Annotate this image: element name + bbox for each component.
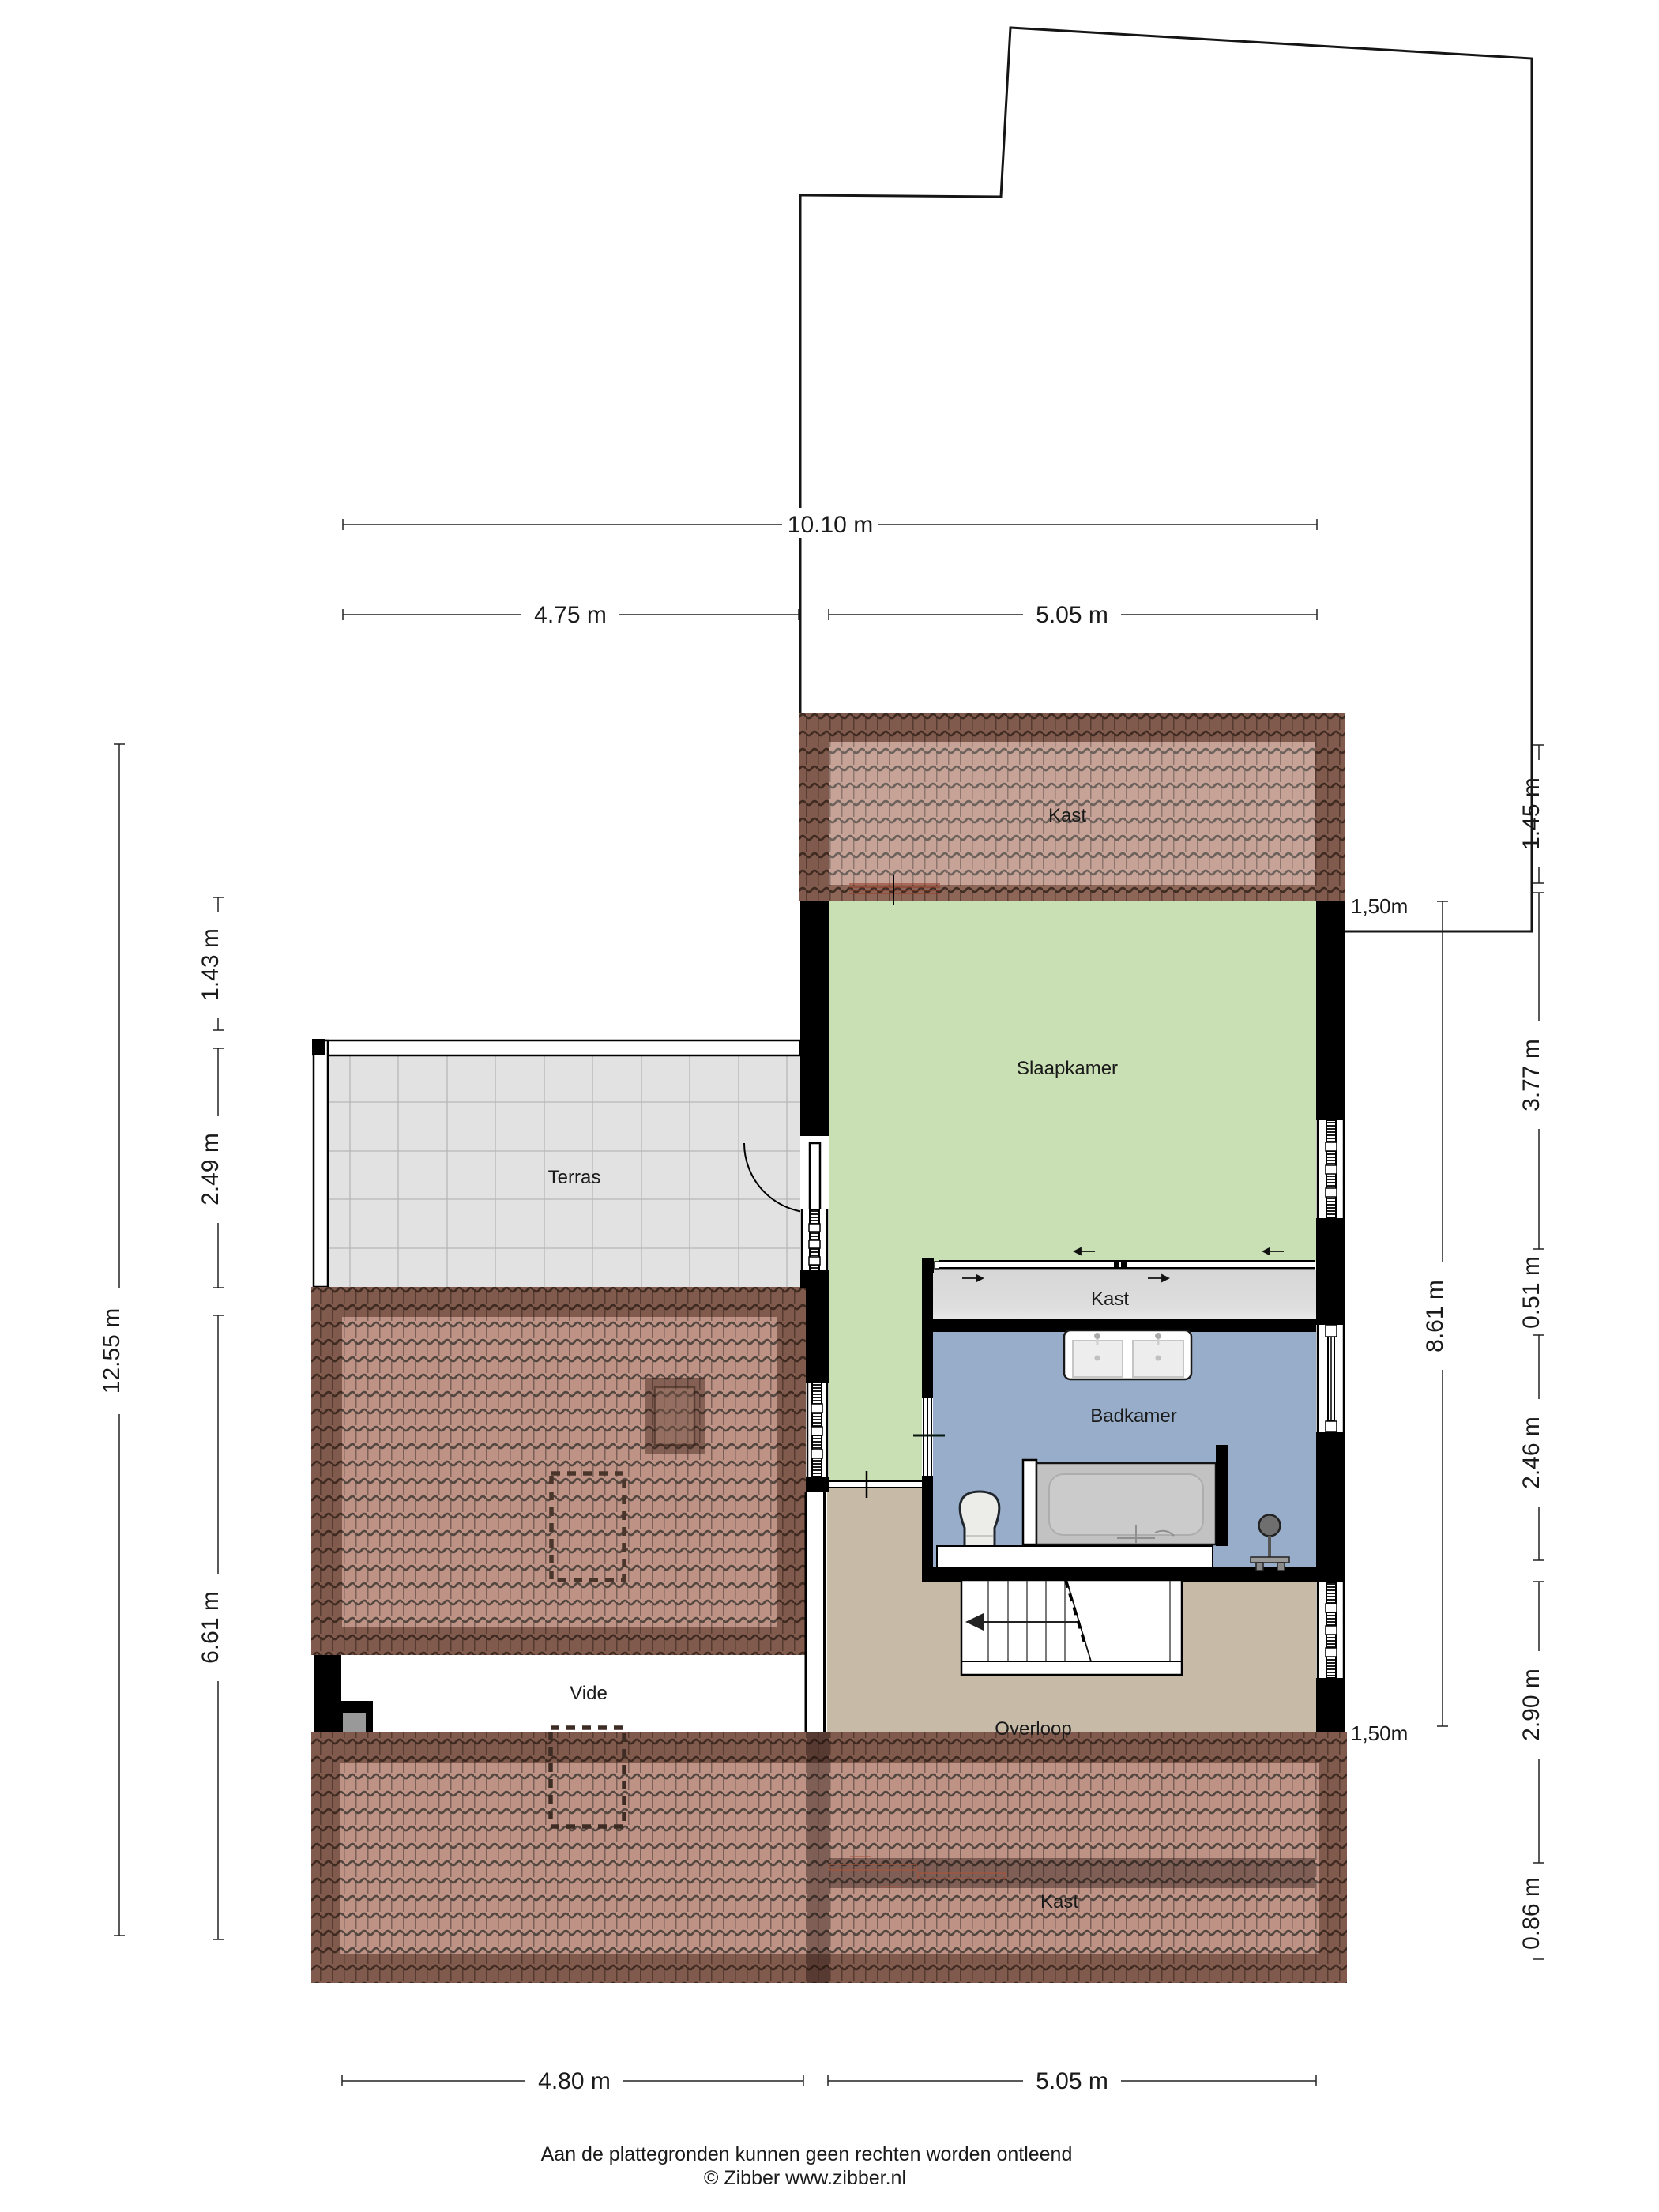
svg-text:2.90 m: 2.90 m	[1518, 1668, 1544, 1741]
svg-text:Badkamer: Badkamer	[1090, 1405, 1176, 1427]
svg-text:12.55 m: 12.55 m	[99, 1308, 125, 1394]
svg-text:© Zibber www.zibber.nl: © Zibber www.zibber.nl	[704, 2167, 906, 2189]
svg-text:5.05 m: 5.05 m	[1036, 602, 1108, 628]
svg-text:Vide: Vide	[570, 1683, 608, 1704]
svg-text:Kast: Kast	[1040, 1891, 1078, 1913]
svg-text:2.49 m: 2.49 m	[197, 1133, 224, 1206]
svg-text:1.43 m: 1.43 m	[197, 928, 224, 1001]
svg-text:1,50m: 1,50m	[1351, 1721, 1408, 1745]
svg-text:5.05 m: 5.05 m	[1036, 2068, 1108, 2094]
svg-text:4.80 m: 4.80 m	[538, 2068, 611, 2094]
svg-text:1,50m: 1,50m	[1351, 894, 1408, 918]
svg-text:Overloop: Overloop	[995, 1718, 1071, 1740]
svg-text:0.51 m: 0.51 m	[1518, 1256, 1544, 1329]
svg-text:1.45 m: 1.45 m	[1518, 777, 1544, 850]
svg-text:Aan de plattegronden kunnen ge: Aan de plattegronden kunnen geen rechten…	[541, 2143, 1073, 2165]
svg-text:6.61 m: 6.61 m	[197, 1591, 224, 1664]
svg-text:0.86 m: 0.86 m	[1518, 1877, 1544, 1950]
svg-text:Slaapkamer: Slaapkamer	[1017, 1058, 1118, 1079]
svg-text:Terras: Terras	[548, 1167, 601, 1188]
svg-text:4.75 m: 4.75 m	[534, 602, 607, 628]
svg-text:10.10 m: 10.10 m	[788, 512, 873, 538]
svg-text:8.61 m: 8.61 m	[1422, 1280, 1448, 1352]
svg-text:Kast: Kast	[1091, 1288, 1129, 1310]
svg-text:Kast: Kast	[1048, 805, 1086, 826]
svg-text:2.46 m: 2.46 m	[1518, 1416, 1544, 1489]
svg-text:3.77 m: 3.77 m	[1518, 1039, 1544, 1112]
